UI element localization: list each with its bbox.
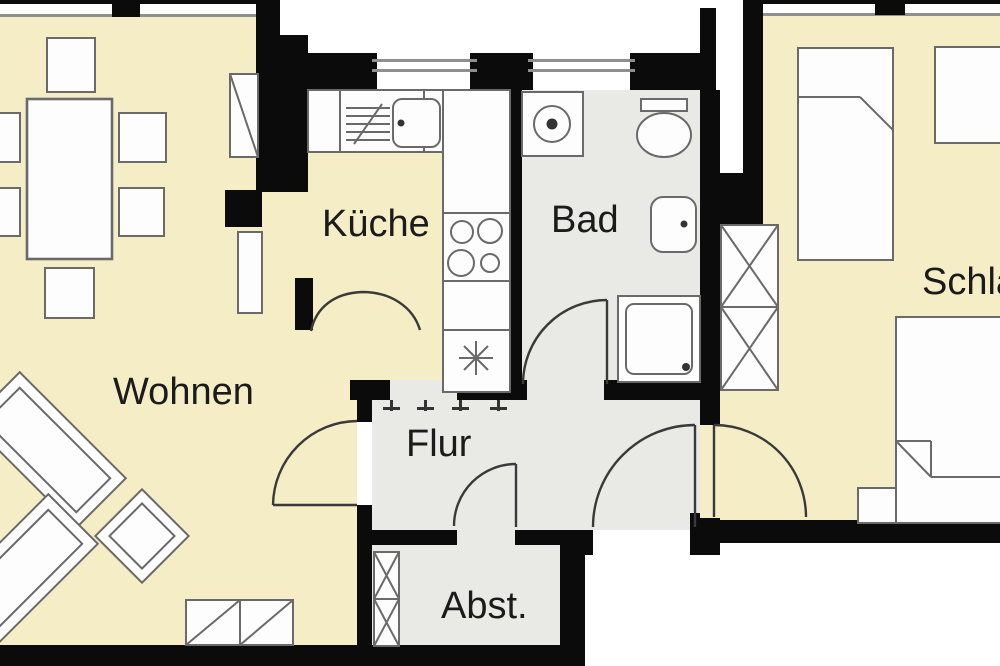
water-heater-icon bbox=[459, 341, 493, 375]
window-kueche-line-2 bbox=[372, 69, 477, 72]
room-label-wohnen: Wohnen bbox=[113, 371, 254, 413]
dining-chair bbox=[119, 188, 164, 236]
wall-flur-north-1 bbox=[350, 380, 390, 400]
wall-abst-north-1 bbox=[372, 530, 457, 545]
dining-chair bbox=[45, 268, 94, 318]
dining-chair bbox=[0, 113, 20, 162]
wall-north-mid-3 bbox=[630, 53, 716, 90]
single-bed bbox=[798, 48, 893, 260]
wardrobe-icon bbox=[721, 225, 778, 390]
window-schlafen-outer-line bbox=[743, 0, 1000, 4]
room-label-flur: Flur bbox=[406, 423, 472, 465]
window-schlafen-glass bbox=[743, 4, 1000, 13]
room-label-kueche: Küche bbox=[322, 203, 430, 245]
window-kueche-line-1 bbox=[372, 59, 477, 62]
wall-kueche-door-stub bbox=[295, 278, 313, 330]
window-bad-line-2 bbox=[528, 69, 635, 72]
room-label-bad: Bad bbox=[551, 199, 619, 241]
desk bbox=[935, 47, 1000, 143]
abst-furniture bbox=[374, 552, 399, 646]
room-wohnen-passage-floor bbox=[256, 190, 308, 645]
room-label-abst: Abst. bbox=[441, 585, 528, 627]
doorway-entrance bbox=[593, 530, 690, 555]
wall-stub-north bbox=[700, 8, 716, 53]
wall-entry-left bbox=[585, 530, 593, 555]
kitchen-sink-icon bbox=[393, 99, 440, 147]
doorway-bad bbox=[527, 380, 604, 400]
wall-wohnen-east bbox=[256, 0, 280, 192]
wall-south bbox=[0, 645, 585, 666]
nightstand bbox=[858, 488, 896, 523]
shower-icon bbox=[618, 296, 700, 382]
room-wohnen-floor-south bbox=[308, 392, 357, 645]
wall-wohnen-flur-upper bbox=[357, 398, 372, 422]
wall-schlafen-west bbox=[743, 3, 763, 187]
chimney-block bbox=[225, 190, 262, 227]
dining-table bbox=[27, 99, 112, 259]
floor-plan: Wohnen Küche Bad Flur Abst. Schlafen bbox=[0, 0, 1000, 666]
room-label-schlafen: Schlafen bbox=[922, 261, 1000, 303]
wall-wohnen-flur-lower bbox=[357, 505, 372, 650]
window-schlafen-inner-line bbox=[743, 13, 1000, 16]
window-pier-schlafen bbox=[875, 0, 905, 15]
washbasin-icon bbox=[651, 197, 696, 252]
wall-abst-north-2 bbox=[515, 530, 560, 545]
doorway-schlafen bbox=[700, 425, 720, 518]
wall-north-mid-1 bbox=[303, 53, 377, 90]
window-pier-wohnen bbox=[112, 0, 140, 17]
dining-chair bbox=[119, 113, 166, 162]
dining-chair bbox=[47, 38, 95, 92]
double-bed bbox=[896, 317, 1000, 523]
room-kueche-floor bbox=[308, 152, 443, 392]
wall-north-mid-2 bbox=[470, 53, 533, 90]
washing-machine-icon bbox=[522, 92, 583, 156]
floor-plan-canvas: Wohnen Küche Bad Flur Abst. Schlafen bbox=[0, 0, 1000, 666]
wall-bad-schlafen bbox=[700, 90, 720, 390]
wall-flur-schlafen-upper bbox=[700, 390, 720, 425]
window-bad-line-1 bbox=[528, 59, 635, 62]
dining-chair bbox=[0, 188, 20, 236]
toilet-icon bbox=[637, 99, 691, 157]
radiator bbox=[238, 232, 262, 313]
doorway-abst bbox=[457, 530, 515, 545]
